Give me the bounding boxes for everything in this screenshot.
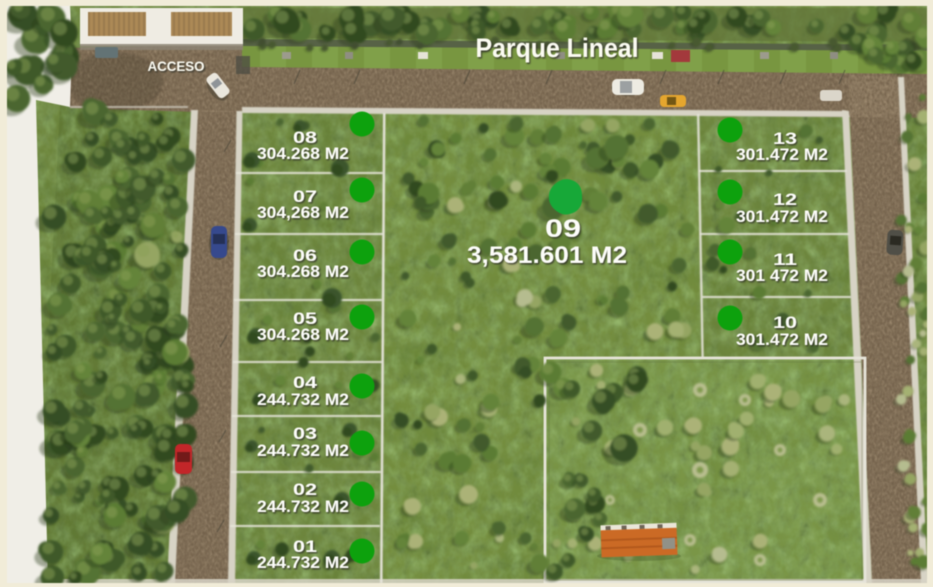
svg-text:244.732 M2: 244.732 M2: [257, 441, 349, 460]
svg-text:3,581.601 M2: 3,581.601 M2: [467, 242, 627, 269]
svg-text:301.472 M2: 301.472 M2: [736, 330, 828, 349]
svg-text:ACCESO: ACCESO: [148, 58, 205, 74]
svg-text:304.268 M2: 304.268 M2: [257, 144, 349, 163]
svg-text:301 472 M2: 301 472 M2: [736, 266, 828, 285]
svg-text:244.732 M2: 244.732 M2: [257, 497, 349, 516]
svg-text:304.268 M2: 304.268 M2: [257, 262, 349, 281]
svg-text:244.732 M2: 244.732 M2: [257, 553, 349, 572]
svg-text:304,268 M2: 304,268 M2: [257, 203, 349, 222]
svg-text:244.732 M2: 244.732 M2: [257, 390, 349, 409]
svg-text:304.268 M2: 304.268 M2: [257, 325, 349, 344]
svg-text:301.472 M2: 301.472 M2: [736, 207, 828, 226]
svg-text:Parque Lineal: Parque Lineal: [476, 33, 639, 63]
svg-text:09: 09: [545, 215, 581, 243]
svg-text:301.472 M2: 301.472 M2: [736, 145, 828, 164]
